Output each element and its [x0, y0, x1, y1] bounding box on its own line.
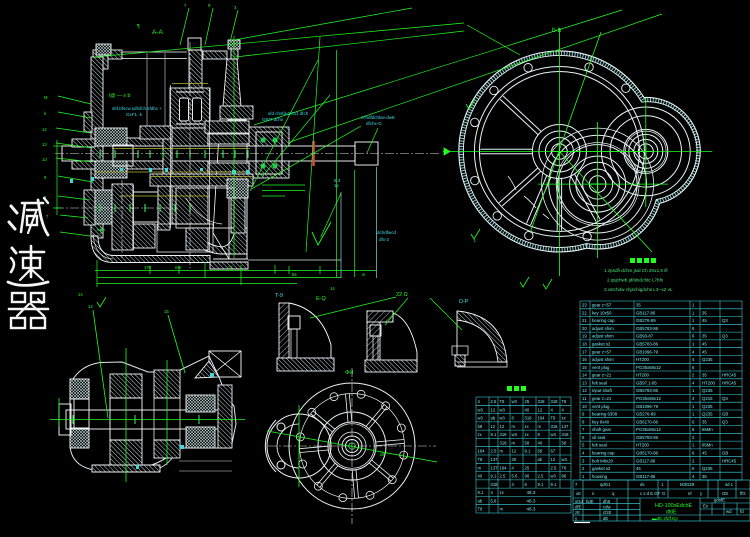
svg-text:input shaft: input shaft: [592, 388, 613, 393]
svg-text:Q3: Q3: [722, 419, 728, 424]
svg-text:dfE: dfE: [575, 505, 582, 510]
svg-text:40: 40: [512, 457, 517, 462]
svg-text:m: m: [478, 465, 482, 470]
svg-text:35: 35: [702, 373, 707, 378]
svg-text:housing: housing: [592, 474, 608, 479]
svg-text:HT200: HT200: [636, 357, 650, 362]
svg-text:137: 137: [491, 465, 499, 470]
svg-text:xE: xE: [576, 491, 581, 496]
svg-text:ab: ab: [491, 416, 496, 421]
svg-text:35: 35: [636, 303, 641, 308]
svg-text:m: m: [538, 424, 542, 429]
svg-text:PG35x58x12: PG35x58x12: [636, 365, 661, 370]
svg-text:gear z=21: gear z=21: [592, 396, 612, 401]
svg-text:164: 164: [538, 416, 546, 421]
svg-text:w3: w3: [478, 416, 484, 421]
svg-text:t@ — ≡ b: t@ — ≡ b: [109, 93, 131, 99]
svg-text:adjust shim: adjust shim: [592, 357, 614, 362]
svg-text:3.xstchdw chjschigdchs L3--x2: 3.xstchdw chjschigdchs L3--x2 vL: [604, 287, 673, 292]
svg-text:Ex: Ex: [703, 504, 709, 509]
svg-text:GB6170-86: GB6170-86: [636, 419, 659, 424]
svg-text:13: 13: [42, 142, 47, 147]
svg-text:318: 318: [551, 399, 559, 404]
svg-text:40: 40: [525, 407, 530, 412]
svg-text:12: 12: [512, 449, 517, 454]
svg-text:sGd: sGd: [575, 499, 583, 504]
svg-text:23: 23: [582, 303, 587, 308]
svg-text:Q235: Q235: [702, 388, 713, 393]
svg-text:ds: ds: [640, 482, 645, 487]
svg-text:gasket s2: gasket s2: [592, 466, 611, 471]
svg-text:1d: 1d: [42, 157, 47, 162]
svg-text:318: 318: [500, 440, 508, 445]
svg-text:14: 14: [78, 292, 83, 297]
svg-text:HT200: HT200: [636, 373, 650, 378]
svg-text:qdG1: qdG1: [600, 482, 611, 487]
svg-text:gear z=57: gear z=57: [592, 303, 612, 308]
svg-text:GB: GB: [722, 451, 728, 456]
svg-text:vent plug: vent plug: [592, 404, 610, 409]
svg-text:65Mn: 65Mn: [702, 427, 713, 432]
svg-text:15: 15: [582, 365, 587, 370]
svg-text:ffG: ffG: [740, 491, 746, 496]
svg-text:170: 170: [144, 265, 152, 270]
svg-text:sfd.bfscw.sdfxfch.sfdbx +: sfd.bfscw.sdfxfch.sfdbx +: [112, 106, 162, 111]
svg-text:felt seal: felt seal: [592, 380, 607, 385]
svg-text:12: 12: [582, 388, 587, 393]
svg-text:HRC45: HRC45: [722, 373, 737, 378]
svg-text:T8: T8: [478, 457, 484, 462]
svg-text:12: 12: [491, 407, 496, 412]
svg-text:9.1: 9.1: [525, 449, 531, 454]
svg-text:E-Q: E-Q: [316, 296, 327, 302]
svg-text:m: m: [500, 449, 504, 454]
svg-text:key 8x40: key 8x40: [592, 419, 610, 424]
svg-text:2.5: 2.5: [500, 474, 506, 479]
svg-text:w3: w3: [562, 457, 568, 462]
svg-text:48.3: 48.3: [527, 490, 536, 495]
svg-text:GB5783-86: GB5783-86: [636, 388, 659, 393]
svg-text:5.6: 5.6: [491, 498, 497, 503]
svg-text:318: 318: [500, 432, 508, 437]
svg-text:16: 16: [582, 357, 587, 362]
svg-text:48.3: 48.3: [527, 507, 536, 512]
svg-text:137: 137: [562, 424, 570, 429]
svg-text:84: 84: [292, 272, 297, 277]
svg-text:ab: ab: [478, 498, 483, 503]
svg-text:bearing cap: bearing cap: [592, 318, 615, 323]
svg-text:GB/T dchx: GB/T dchx: [262, 117, 284, 122]
svg-text:gasket s2: gasket s2: [592, 342, 611, 347]
svg-text:25: 25: [525, 465, 530, 470]
svg-text:2.5: 2.5: [538, 474, 544, 479]
svg-text:12: 12: [491, 424, 496, 429]
svg-text:T8: T8: [562, 465, 568, 470]
svg-text:GB1096-79: GB1096-79: [636, 349, 659, 354]
svg-text:hdE: hdE: [586, 499, 594, 504]
svg-text:48.3: 48.3: [527, 498, 536, 503]
svg-text:T8: T8: [562, 399, 568, 404]
svg-text:22 Ω: 22 Ω: [396, 292, 408, 298]
svg-text:w3: w3: [512, 399, 518, 404]
svg-text:1x: 1x: [334, 183, 340, 188]
svg-text:HD-100xEdchE: HD-100xEdchE: [655, 503, 693, 509]
svg-text:9.1: 9.1: [538, 482, 544, 487]
svg-text:22: 22: [582, 310, 587, 315]
svg-text:12: 12: [551, 457, 556, 462]
svg-text:w3: w3: [551, 474, 557, 479]
svg-text:GB117-86: GB117-86: [636, 474, 656, 479]
svg-text:19: 19: [582, 334, 587, 339]
svg-text:M3GZ9: M3GZ9: [680, 482, 695, 487]
svg-text:HRC45: HRC45: [722, 458, 737, 463]
svg-text:HT200: HT200: [702, 380, 716, 385]
svg-text:cfzE: cfzE: [603, 510, 611, 515]
svg-text:58: 58: [562, 440, 567, 445]
svg-text:Q3: Q3: [722, 396, 728, 401]
svg-text:M: M: [44, 95, 48, 100]
svg-text:Q235: Q235: [702, 466, 713, 471]
svg-text:GB97.1-85: GB97.1-85: [636, 380, 657, 385]
svg-text:m: m: [512, 424, 516, 429]
svg-text:2.qsjchwb jd8ds3cfdc L7bfx: 2.qsjchwb jd8ds3cfdc L7bfx: [607, 278, 664, 283]
svg-text:w3: w3: [500, 407, 506, 412]
svg-text:40: 40: [478, 474, 483, 479]
svg-text:12: 12: [538, 407, 543, 412]
svg-text:d6: d6: [380, 452, 386, 457]
svg-text:GB5783-86: GB5783-86: [636, 435, 659, 440]
svg-text:dfdE: dfdE: [666, 510, 677, 516]
svg-text:bearing cap: bearing cap: [592, 451, 615, 456]
svg-text:96: 96: [525, 474, 530, 479]
svg-text:wd: wd: [726, 509, 732, 514]
svg-text:bearing 6308: bearing 6308: [592, 412, 618, 417]
svg-text:sd L: sd L: [725, 482, 734, 487]
svg-text:gear z=57: gear z=57: [592, 349, 612, 354]
svg-text:¶: ¶: [137, 24, 140, 30]
svg-text:Q235: Q235: [702, 412, 713, 417]
svg-text:Q215: Q215: [702, 396, 713, 401]
svg-text:45: 45: [702, 342, 707, 347]
svg-text:65Mn: 65Mn: [702, 443, 713, 448]
svg-text:45: 45: [702, 451, 707, 456]
svg-text:35: 35: [702, 419, 707, 424]
svg-text:w3: w3: [500, 416, 506, 421]
svg-text:9.1: 9.1: [491, 432, 497, 437]
svg-text:felt seal: felt seal: [592, 443, 607, 448]
svg-text:adjust shim: adjust shim: [592, 334, 614, 339]
svg-text:15: 15: [164, 309, 169, 314]
svg-text:w3: w3: [551, 432, 557, 437]
svg-text:58: 58: [538, 449, 543, 454]
svg-text:318: 318: [551, 424, 559, 429]
svg-text:zchdfdchbw-dwE: zchdfdchbw-dwE: [361, 115, 395, 120]
svg-text:PG35x58x12: PG35x58x12: [636, 396, 661, 401]
svg-text:13: 13: [582, 380, 587, 385]
svg-text:137: 137: [491, 457, 499, 462]
svg-text:Q235: Q235: [702, 404, 713, 409]
svg-text:318: 318: [525, 416, 533, 421]
svg-text:164: 164: [478, 449, 486, 454]
svg-text:vent plug: vent plug: [592, 365, 610, 370]
svg-text:GB117-86: GB117-86: [636, 458, 656, 463]
svg-text:40: 40: [538, 440, 543, 445]
svg-text:58: 58: [478, 424, 483, 429]
svg-text:dfx-2: dfx-2: [379, 237, 390, 242]
svg-text:164: 164: [500, 465, 508, 470]
svg-text:2.5: 2.5: [551, 465, 557, 470]
svg-text:gdsfE: gdsfE: [714, 498, 725, 503]
svg-text:ΦH: ΦH: [345, 370, 353, 376]
svg-text:T8: T8: [500, 399, 506, 404]
svg-text:1.zpsdfi dchm jsid Ch 20±1.5: 1.zpsdfi dchm jsid Ch 20±1.5 ifl: [604, 268, 668, 273]
svg-text:9.1: 9.1: [478, 490, 484, 495]
svg-text:oil seal: oil seal: [592, 435, 605, 440]
svg-text:5.6: 5.6: [512, 474, 518, 479]
svg-text:cdw: cdw: [603, 505, 612, 510]
svg-text:20: 20: [582, 326, 587, 331]
svg-text:25: 25: [525, 399, 530, 404]
svg-text:GB1096-79: GB1096-79: [636, 404, 659, 409]
svg-text:dh5: dh5: [603, 499, 611, 504]
svg-text:dfchx-G: dfchx-G: [366, 121, 382, 126]
svg-text:GxF1.-k: GxF1.-k: [126, 112, 143, 117]
svg-text:GB5783-86: GB5783-86: [636, 342, 659, 347]
svg-text:GE: GE: [722, 491, 728, 496]
svg-text:9.1: 9.1: [551, 482, 557, 487]
svg-text:12: 12: [500, 424, 505, 429]
svg-text:Q235: Q235: [702, 357, 713, 362]
svg-text:zE: zE: [575, 510, 580, 515]
svg-text:fd: fd: [740, 509, 744, 514]
svg-text:▬dE.zfdf.Ep: ▬dE.zfdf.Ep: [652, 516, 678, 521]
svg-text:gear z=21: gear z=21: [592, 373, 612, 378]
svg-text:w3: w3: [512, 432, 518, 437]
svg-text:18: 18: [582, 342, 587, 347]
svg-text:HRC45: HRC45: [722, 380, 737, 385]
svg-text:D-P: D-P: [459, 299, 469, 305]
svg-text:14: 14: [88, 304, 93, 309]
svg-text:45: 45: [636, 466, 641, 471]
svg-text:GB276-89: GB276-89: [636, 318, 656, 323]
svg-text:45: 45: [702, 349, 707, 354]
svg-text:dchdfwcd: dchdfwcd: [377, 230, 397, 235]
svg-text:T-9: T-9: [275, 293, 283, 299]
svg-text:Q3: Q3: [722, 334, 728, 339]
svg-text:T8: T8: [551, 416, 557, 421]
svg-text:67: 67: [551, 449, 556, 454]
svg-text:14: 14: [330, 286, 335, 291]
svg-text:Q3: Q3: [722, 318, 728, 323]
svg-text:318: 318: [491, 482, 499, 487]
svg-text:key 10x56: key 10x56: [592, 310, 612, 315]
svg-text:35: 35: [702, 474, 707, 479]
svg-text:11: 11: [582, 396, 587, 401]
svg-text:w3: w3: [478, 407, 484, 412]
svg-text:GB: GB: [722, 412, 728, 417]
svg-text:GB6170-86: GB6170-86: [636, 451, 659, 456]
svg-text:21: 21: [582, 318, 587, 323]
svg-text:2.5: 2.5: [491, 449, 497, 454]
svg-text:ab: ab: [538, 457, 543, 462]
svg-text:12: 12: [42, 127, 47, 132]
svg-text:xfd chsfd-0.011 dfch: xfd chsfd-0.011 dfch: [268, 111, 309, 116]
svg-text:GB5783-86: GB5783-86: [636, 326, 659, 331]
svg-text:GB276-89: GB276-89: [636, 412, 656, 417]
svg-text:14: 14: [228, 265, 233, 270]
svg-text:17: 17: [582, 349, 587, 354]
svg-text:adjust shim: adjust shim: [592, 326, 614, 331]
svg-text:dE: dE: [603, 516, 608, 521]
svg-text:14: 14: [582, 373, 587, 378]
svg-text:m: m: [512, 440, 516, 445]
svg-text:HT200: HT200: [636, 443, 650, 448]
svg-text:m8: m8: [175, 265, 181, 270]
svg-text:2.5: 2.5: [491, 399, 497, 404]
svg-text:m: m: [500, 507, 504, 512]
svg-text:96: 96: [562, 474, 567, 479]
svg-text:318: 318: [562, 432, 570, 437]
svg-text:10: 10: [582, 404, 587, 409]
svg-text:9.1: 9.1: [491, 474, 497, 479]
svg-text:58: 58: [525, 440, 530, 445]
svg-text:bolt M8x20: bolt M8x20: [592, 458, 614, 463]
svg-text:GB93-87: GB93-87: [636, 334, 654, 339]
svg-text:318: 318: [538, 399, 546, 404]
svg-text:PG35x58x12: PG35x58x12: [636, 427, 661, 432]
svg-text:45: 45: [702, 318, 707, 323]
svg-text:shaft gear: shaft gear: [592, 427, 612, 432]
svg-text:35: 35: [702, 334, 707, 339]
svg-text:35: 35: [702, 310, 707, 315]
svg-text:GB117-86: GB117-86: [636, 310, 656, 315]
svg-text:c s d E.GF: c s d E.GF: [640, 491, 661, 496]
svg-text:T8: T8: [478, 507, 484, 512]
svg-text:A-A: A-A: [152, 29, 164, 36]
